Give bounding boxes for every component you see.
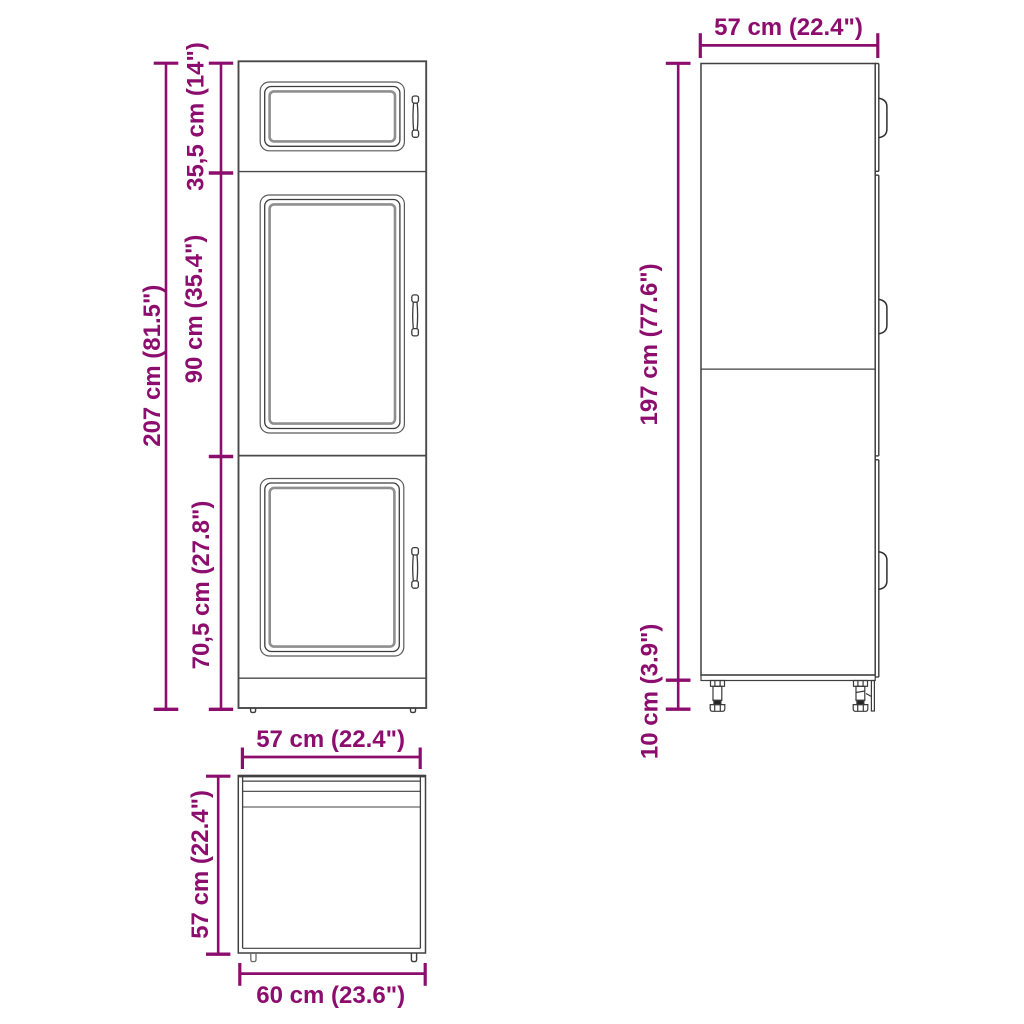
svg-text:57 cm (22.4"): 57 cm (22.4") bbox=[187, 790, 214, 939]
svg-text:207 cm (81.5"): 207 cm (81.5") bbox=[139, 285, 166, 447]
svg-text:197 cm (77.6"): 197 cm (77.6") bbox=[636, 263, 663, 425]
svg-text:35,5 cm (14"): 35,5 cm (14") bbox=[183, 42, 210, 191]
svg-text:57 cm (22.4"): 57 cm (22.4") bbox=[714, 14, 863, 41]
svg-text:60 cm (23.6"): 60 cm (23.6") bbox=[256, 982, 405, 1009]
svg-text:10 cm (3.9"): 10 cm (3.9") bbox=[637, 624, 664, 759]
svg-text:90 cm (35.4"): 90 cm (35.4") bbox=[181, 235, 208, 384]
svg-text:70,5 cm (27.8"): 70,5 cm (27.8") bbox=[188, 501, 215, 670]
svg-text:57 cm (22.4"): 57 cm (22.4") bbox=[256, 726, 405, 753]
